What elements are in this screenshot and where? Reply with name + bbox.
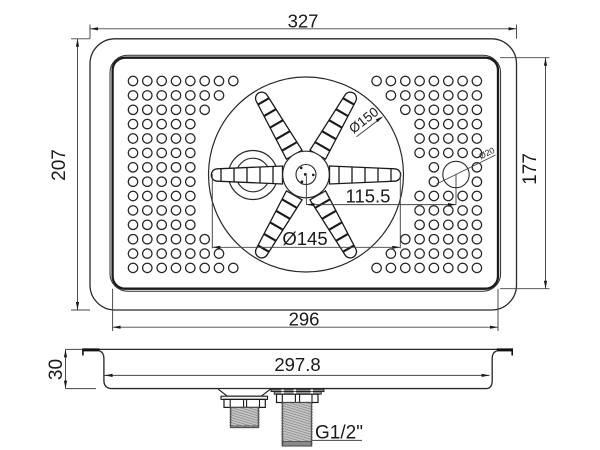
svg-text:30: 30 (46, 359, 67, 380)
svg-text:297.8: 297.8 (274, 354, 320, 375)
svg-text:177: 177 (520, 153, 541, 185)
svg-text:115.5: 115.5 (346, 185, 391, 206)
svg-text:327: 327 (288, 10, 319, 31)
svg-text:296: 296 (289, 308, 320, 329)
svg-text:207: 207 (49, 149, 70, 181)
svg-text:Ø145: Ø145 (282, 228, 327, 249)
